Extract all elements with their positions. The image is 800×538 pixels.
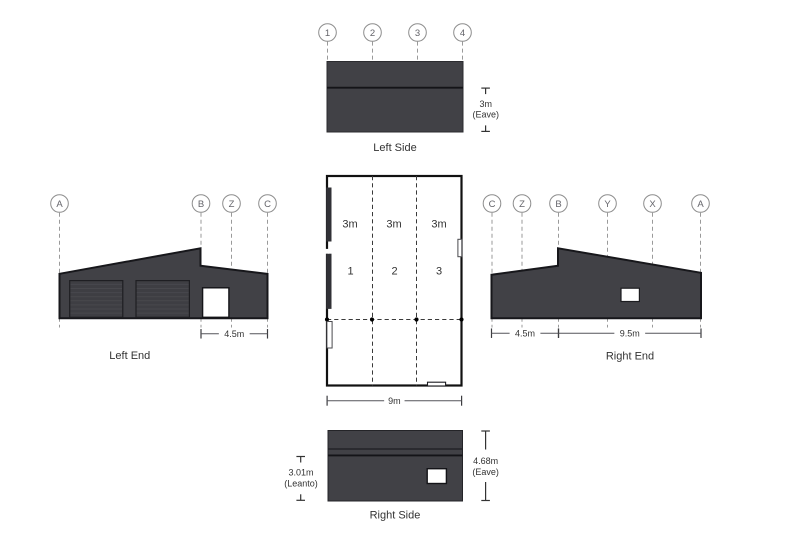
svg-text:3m: 3m	[480, 99, 493, 109]
svg-text:A: A	[56, 199, 63, 210]
svg-text:Z: Z	[229, 199, 235, 210]
svg-text:3m: 3m	[386, 219, 401, 231]
svg-text:B: B	[555, 199, 561, 210]
svg-text:3: 3	[436, 266, 442, 278]
svg-text:9m: 9m	[388, 396, 401, 406]
svg-text:2: 2	[370, 28, 375, 39]
svg-text:(Eave): (Eave)	[473, 110, 500, 120]
svg-text:3: 3	[415, 28, 420, 39]
svg-text:3m: 3m	[342, 219, 357, 231]
svg-text:4.5m: 4.5m	[224, 329, 244, 339]
svg-text:4: 4	[460, 28, 465, 39]
svg-text:Left End: Left End	[109, 350, 150, 362]
svg-text:Right Side: Right Side	[370, 510, 421, 522]
svg-text:1: 1	[347, 266, 353, 278]
svg-text:2: 2	[391, 266, 397, 278]
svg-text:3m: 3m	[431, 219, 446, 231]
svg-text:C: C	[264, 199, 271, 210]
svg-text:Z: Z	[519, 199, 525, 210]
svg-text:1: 1	[325, 28, 330, 39]
svg-text:A: A	[697, 199, 704, 210]
svg-text:4.5m: 4.5m	[515, 328, 535, 338]
svg-text:9.5m: 9.5m	[620, 328, 640, 338]
svg-text:Right End: Right End	[606, 351, 654, 363]
svg-text:Left Side: Left Side	[373, 142, 416, 154]
svg-text:(Leanto): (Leanto)	[284, 478, 318, 488]
svg-text:4.68m: 4.68m	[473, 456, 498, 466]
svg-text:Y: Y	[604, 199, 611, 210]
svg-text:3.01m: 3.01m	[288, 468, 313, 478]
svg-text:B: B	[198, 199, 204, 210]
svg-text:(Eave): (Eave)	[472, 467, 499, 477]
svg-text:C: C	[489, 199, 496, 210]
svg-text:X: X	[649, 199, 656, 210]
